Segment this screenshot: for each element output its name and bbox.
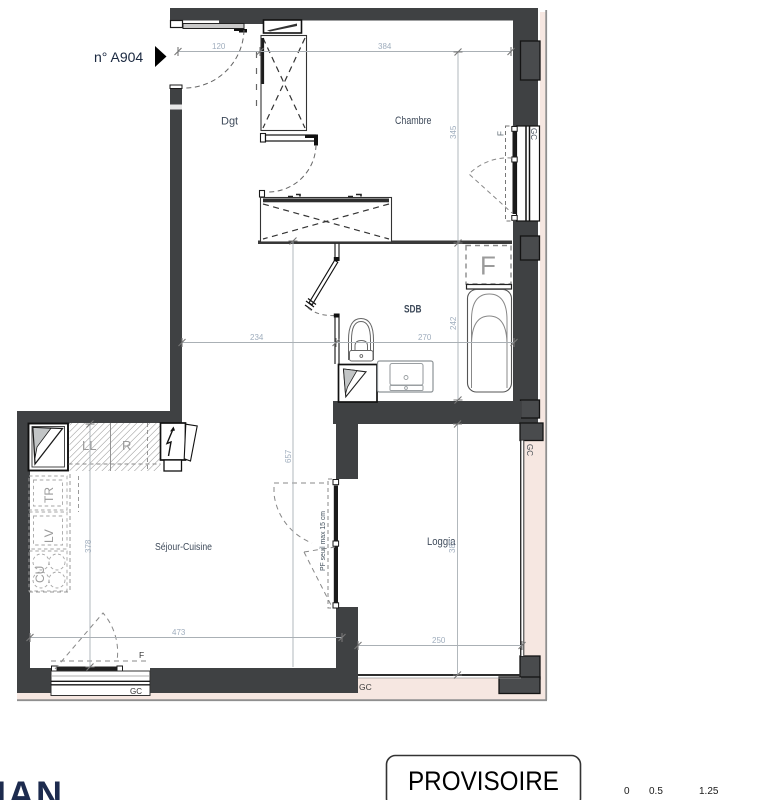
svg-text:270: 270 [418, 333, 432, 342]
svg-text:GC: GC [130, 687, 142, 696]
svg-text:F: F [480, 251, 496, 281]
svg-text:473: 473 [172, 628, 186, 637]
svg-text:GC: GC [525, 444, 534, 456]
svg-text:387: 387 [448, 539, 457, 553]
svg-text:F: F [139, 650, 144, 660]
svg-text:GC: GC [529, 128, 538, 140]
svg-text:PROVISOIRE: PROVISOIRE [408, 766, 559, 796]
svg-text:378: 378 [84, 539, 93, 553]
svg-text:0: 0 [624, 786, 630, 797]
svg-text:LV: LV [42, 529, 56, 543]
svg-text:F: F [497, 131, 506, 136]
svg-text:120: 120 [212, 42, 226, 51]
svg-text:345: 345 [449, 125, 458, 139]
svg-text:PF seuil max 15 cm: PF seuil max 15 cm [318, 511, 327, 571]
svg-text:0.5: 0.5 [649, 786, 663, 797]
svg-text:n° A904: n° A904 [94, 49, 143, 65]
svg-text:Séjour-Cuisine: Séjour-Cuisine [155, 541, 212, 553]
svg-text:250: 250 [432, 636, 446, 645]
svg-text:Chambre: Chambre [395, 115, 432, 127]
svg-text:SDB: SDB [404, 304, 422, 316]
svg-text:R: R [122, 438, 131, 453]
svg-text:IAN: IAN [0, 774, 64, 800]
svg-text:384: 384 [378, 42, 392, 51]
svg-text:1.25: 1.25 [699, 786, 719, 797]
svg-text:GC: GC [359, 682, 372, 692]
svg-text:657: 657 [284, 449, 293, 463]
svg-text:Dgt: Dgt [221, 116, 238, 128]
svg-text:CU: CU [33, 566, 47, 583]
svg-text:TR: TR [42, 487, 56, 503]
svg-text:242: 242 [449, 316, 458, 330]
svg-text:LL: LL [82, 438, 96, 453]
svg-text:234: 234 [250, 333, 264, 342]
